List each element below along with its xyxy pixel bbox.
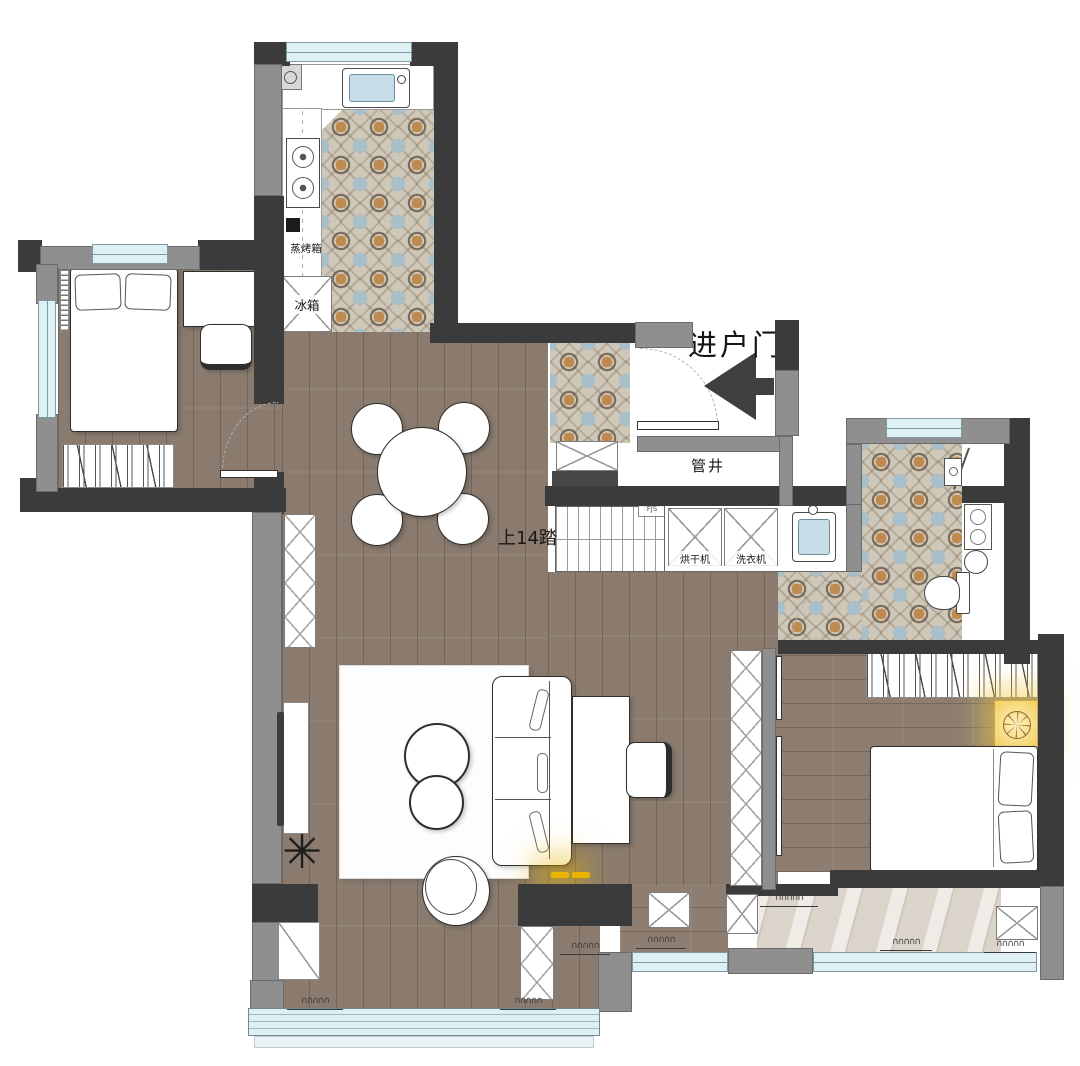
toilet-bowl [924,576,960,610]
entry-tile-floor [550,343,630,443]
bathroom-wall-stub [962,486,1004,503]
wall [775,370,799,436]
tall-storage-cabinet [284,514,316,648]
manifold-label: FJS [638,505,666,513]
tv-bench [283,702,309,834]
floor-lamp-glow [551,872,569,878]
laundry-faucet-icon [808,505,818,515]
wall [830,870,1040,888]
kitchen-gas-box [286,218,300,232]
wall [36,414,58,492]
curtain-symbol: ∩∩∩∩∩ [287,995,343,1010]
wall [254,64,282,196]
stairs-label: 上14踏 [498,524,557,550]
wall [252,884,318,922]
steam-oven-label: 蒸烤箱 [284,241,328,256]
kitchen-stove [286,138,320,208]
bathroom-small-sink [944,458,962,486]
armchair [626,742,672,798]
wall [598,952,632,1012]
wall [846,504,862,572]
wall [254,42,290,66]
fridge-label: 冰箱 [288,295,326,314]
shoe-cabinet-bench [552,471,618,486]
coffee-table-small [409,775,464,830]
sofa [492,676,572,866]
wall [198,240,284,270]
curtain-symbol: ∩∩∩∩∩ [560,940,610,955]
bathroom-window [886,418,962,438]
sofa-cushion [537,753,548,793]
sofa-cushion [528,688,550,732]
pouf-inner [425,859,477,915]
balcony-cabinet [996,906,1038,940]
balcony-cabinet [726,894,758,934]
balcony-window-right [813,952,1037,972]
curtain-symbol: ∩∩∩∩∩ [984,938,1036,953]
bay-window-outer-sill [254,1036,594,1048]
wall [518,884,632,926]
vanity-basin-icon [970,529,986,545]
entry-door-label: 进户门 [688,322,784,364]
balcony-cabinet [648,892,690,928]
tv-panel [277,712,284,826]
balcony-window-left [632,952,728,972]
window-side-cabinet [520,926,554,1000]
wall [1004,418,1030,664]
sofa-back-line [549,681,550,859]
washer-label: 洗衣机 [725,551,777,566]
pouf [422,856,490,926]
laundry-sink [792,512,836,562]
pipe-shaft-label: 管井 [637,455,779,476]
entry-direction-arrow-tail [754,378,774,395]
pillow [124,273,171,311]
vanity-basin-icon [970,509,986,525]
bedroom1-side-window [38,300,56,418]
shoe-cabinet [556,441,618,471]
wall [430,323,638,343]
floor-lamp-glow [572,872,590,878]
sofa-cushion [528,810,550,854]
burner-icon [292,177,314,199]
wall [1040,886,1064,980]
nightstand-ornament [1003,711,1031,739]
bedroom1-headboard [60,270,69,332]
bedroom2-bed [870,746,1038,872]
laundry-sink-basin [798,519,830,555]
bathroom-vanity [964,504,992,550]
media-cabinet [278,922,320,980]
pillow [74,273,121,311]
curtain-symbol: ∩∩∩∩∩ [880,936,932,951]
sink-drain-icon [949,467,958,476]
wall [410,42,440,66]
wall [545,486,848,506]
kitchen-window [286,42,412,62]
wall [762,648,776,890]
wall [254,196,284,404]
pillow [998,751,1035,807]
wall [36,264,58,304]
sliding-door-panel [776,736,782,856]
kitchen-faucet-icon [397,75,406,84]
bay-window [248,1008,600,1036]
appliance-knob-icon [284,71,297,84]
console-table [572,696,630,844]
wall [252,922,280,982]
entry-door-leaf [637,421,719,430]
curtain-symbol: ∩∩∩∩∩ [760,892,818,907]
dryer-label: 烘干机 [669,551,721,566]
kitchen-sink-basin [349,74,395,102]
kitchen-sink [342,68,410,108]
bed-pillow-divider [993,749,994,867]
burner-icon [292,146,314,168]
bedroom1-wardrobe [62,444,174,488]
kitchen-tile-floor [322,108,434,332]
sofa-seat-divider [495,799,551,800]
bedroom2-shelf-column [730,650,762,886]
bedroom1-chair [200,324,252,370]
wall [635,322,693,348]
wall [252,512,282,884]
wall [775,320,799,370]
bedroom2-nightstand [994,700,1038,748]
floor-plan: ✳ 蒸烤箱 冰箱 进户门 管井 上14踏 [0,0,1080,1066]
wall [36,488,286,512]
bedroom1-door-leaf [220,470,278,478]
wall [778,640,1040,654]
kitchen-tile-corner-cut [322,108,344,130]
sliding-door-panel [776,656,782,720]
plant-icon: ✳ [282,828,322,876]
curtain-symbol: ∩∩∩∩∩ [636,934,686,949]
bedroom1-top-window [92,244,168,264]
wall [1038,634,1064,888]
curtain-symbol: ∩∩∩∩∩ [500,995,556,1010]
sofa-seat-divider [495,737,551,738]
wall [434,42,458,326]
dining-table [377,427,467,517]
wall [779,436,793,506]
wall [637,436,793,452]
pillow [998,810,1035,864]
bedroom1-bed [70,268,178,432]
wall [728,948,813,974]
bath-stool [964,550,988,574]
